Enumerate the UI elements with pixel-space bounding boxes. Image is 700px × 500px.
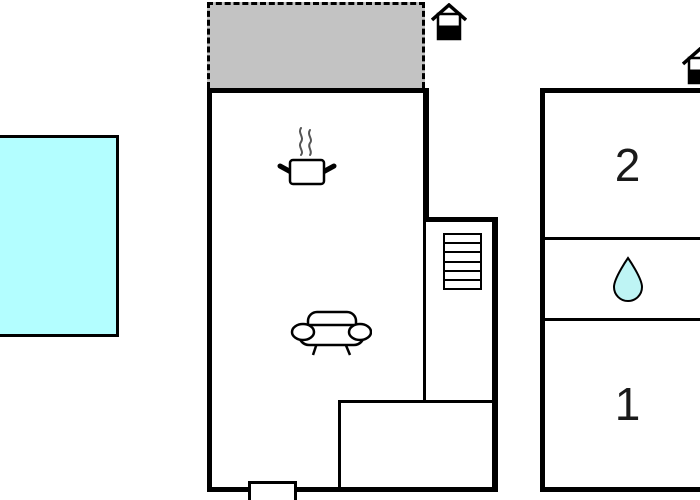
interior-wall-stair-corridor (423, 222, 426, 402)
sofa-icon (288, 306, 372, 358)
main-wall-top (207, 88, 429, 93)
main-wall-right-lower (492, 217, 498, 492)
cooking-pot-icon (276, 124, 338, 188)
house-icon (682, 47, 700, 87)
annex-divider-upper (545, 237, 700, 240)
terrace-area (207, 2, 425, 88)
house-icon (431, 3, 467, 43)
main-wall-right-upper (423, 88, 429, 222)
interior-wall-bottom-room-top (338, 400, 495, 403)
main-wall-left (207, 88, 212, 492)
main-wall-step (423, 217, 498, 222)
floor-plan: 2 1 (0, 0, 700, 500)
stairs-icon (443, 233, 482, 290)
entrance-door (248, 481, 297, 500)
annex-wall-bottom (540, 487, 700, 492)
room-2-label: 2 (545, 93, 700, 237)
room-1-label: 1 (545, 321, 700, 487)
swimming-pool (0, 135, 119, 337)
interior-wall-bottom-room-left (338, 400, 341, 487)
water-drop-icon (545, 241, 700, 317)
